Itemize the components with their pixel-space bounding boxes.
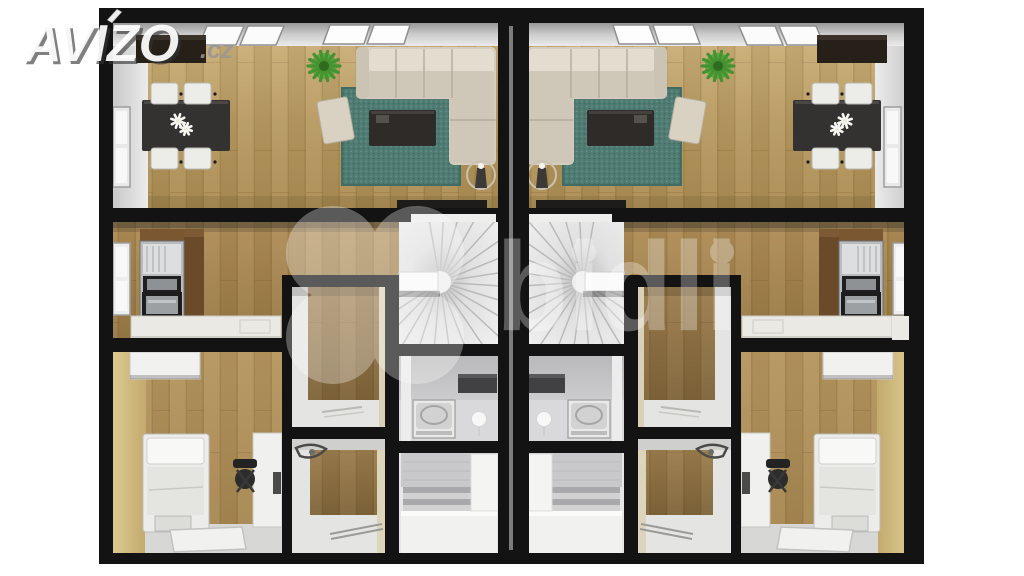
svg-text:AVIZO: AVIZO <box>22 15 179 73</box>
svg-text:bidli: bidli <box>496 216 738 357</box>
svg-text:.cz: .cz <box>200 36 234 64</box>
